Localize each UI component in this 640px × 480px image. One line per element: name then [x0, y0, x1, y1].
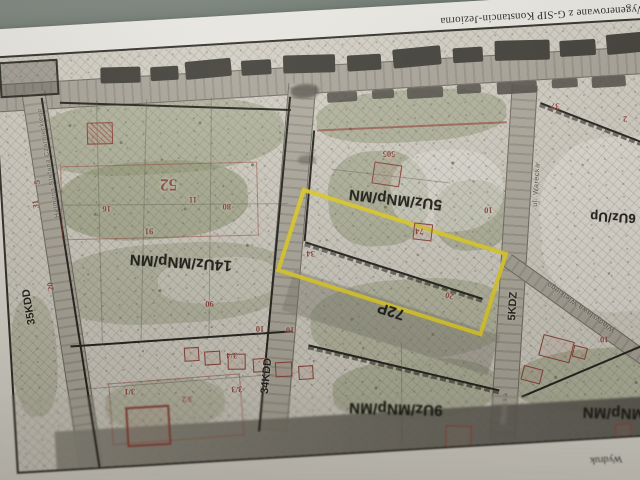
- parcel-number: 10: [484, 205, 493, 215]
- building-footprint: [371, 161, 402, 187]
- parcel-number: 16: [102, 204, 111, 214]
- print-caption: Wydruk: [571, 452, 640, 467]
- paper-sheet: Wygenerowane z G-SIP Konstancin-Jeziorna: [0, 0, 640, 480]
- building-footprint: [184, 347, 200, 362]
- parcel-number: 31: [30, 199, 41, 209]
- parcel-number: 90: [205, 299, 214, 309]
- parcel-number: 3/4: [226, 351, 237, 361]
- parcel-number: 10: [256, 324, 265, 334]
- parcel-number: 2: [623, 114, 627, 124]
- parcel-number: 91: [145, 227, 154, 237]
- building-footprint: [298, 365, 314, 380]
- parcel-number: 10: [286, 325, 295, 335]
- building-footprint: [275, 361, 293, 377]
- parcel-number: 37: [551, 101, 560, 111]
- building-footprint-hatched: [87, 122, 114, 145]
- building-footprint-large: [125, 405, 171, 448]
- parcel-number: 10: [600, 335, 609, 345]
- photo-scene: Wygenerowane z G-SIP Konstancin-Jeziorna: [0, 0, 640, 480]
- zoning-map: 52 11 505 37 34 20 20 10 10 10 10 31 5 9…: [0, 15, 640, 474]
- building-footprint: [445, 425, 472, 448]
- building-footprint: [615, 423, 632, 438]
- zone-label-mnp-mn: MNp/MN: [553, 403, 640, 423]
- parcel-number: 505: [383, 149, 396, 159]
- building-footprint: [204, 351, 221, 366]
- parcel-number: 11: [189, 195, 197, 205]
- parcel-number: 3/3: [231, 385, 242, 395]
- parcel-number: 74: [415, 227, 424, 237]
- parcel-number: 52: [160, 174, 177, 194]
- parcel-number: 20: [45, 282, 56, 292]
- zone-border: [0, 59, 60, 98]
- parcel-number: 34: [306, 249, 315, 259]
- parcel-number: 3/1: [124, 387, 135, 397]
- road-text-smudge: [298, 155, 317, 165]
- parcel-number: 80: [222, 202, 231, 212]
- parcel-number: 3/2: [182, 395, 193, 405]
